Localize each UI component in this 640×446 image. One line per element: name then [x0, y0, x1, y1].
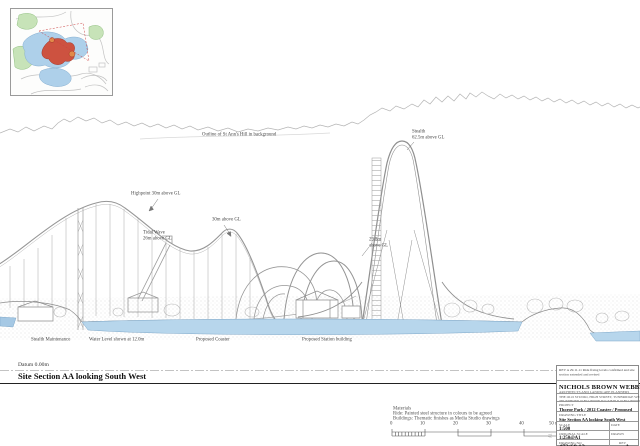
annotation-tidal-wave-height: 26m above GL — [143, 236, 172, 241]
scale-tick-20: 20 — [453, 421, 458, 426]
datum-label: Datum 0.00m — [18, 362, 49, 368]
annotation-hill-outline: Outline of St Ann's Hill in background — [202, 132, 276, 137]
title-block-column-divider — [609, 421, 610, 446]
annotation-highpoint: Highpoint 30m above GL — [131, 191, 180, 196]
annotation-stealth-height: 62.5m above GL — [412, 135, 444, 140]
scale-tick-10: 10 — [420, 421, 425, 426]
annotation-proposed-coaster: Proposed Coaster — [196, 337, 230, 342]
title-block: REV A 29.11.11 Ride fixing levels confir… — [556, 365, 639, 446]
drawing-no-value: 472/68 12 — [559, 443, 585, 446]
site-plan-inset — [10, 8, 113, 96]
revision-value: A — [625, 443, 630, 446]
treeline-outline — [0, 92, 640, 139]
revision-row: REV A 29.11.11 Ride fixing levels confir… — [557, 366, 638, 380]
annotation-hump-height: 30m above GL — [212, 217, 241, 222]
annotation-tidal-wave-name: Tidal Wave — [143, 230, 165, 235]
drawing-no-row: DRAWING NO 472/68 12 REV A — [557, 439, 638, 446]
annotation-water-level: Water Level shown at 12.0m — [89, 337, 144, 342]
annotation-stealth-maintenance: Stealth Maintenance — [31, 337, 70, 342]
revision-note: REV A 29.11.11 Ride fixing levels confir… — [559, 368, 635, 377]
scale-tick-40: 40 — [519, 421, 524, 426]
annotation-arch-height-unit: above GL — [369, 243, 388, 248]
annotation-stealth-name: Stealth — [412, 129, 425, 134]
sheet-size-tag: A1 — [548, 433, 552, 438]
scale-tick-0: 0 — [390, 421, 392, 426]
scale-tick-30: 30 — [486, 421, 491, 426]
site-plan-map — [11, 9, 112, 95]
scale-bar — [392, 429, 557, 436]
annotation-proposed-station: Proposed Station building — [302, 337, 352, 342]
firm-row: NICHOLS BROWN WEBBER ARCHITECTS AND LAND… — [557, 380, 638, 394]
section-title: Site Section AA looking South West — [18, 372, 146, 381]
date-label: DATE — [611, 423, 620, 427]
drawn-label: DRAWN — [611, 432, 624, 436]
notes-line-buildings: Buildings: Thematic finishes as Media St… — [393, 416, 500, 421]
annotation-arch-height-value: 29.8m — [369, 237, 381, 242]
drawing-sheet: Outline of St Ann's Hill in background H… — [0, 0, 640, 446]
